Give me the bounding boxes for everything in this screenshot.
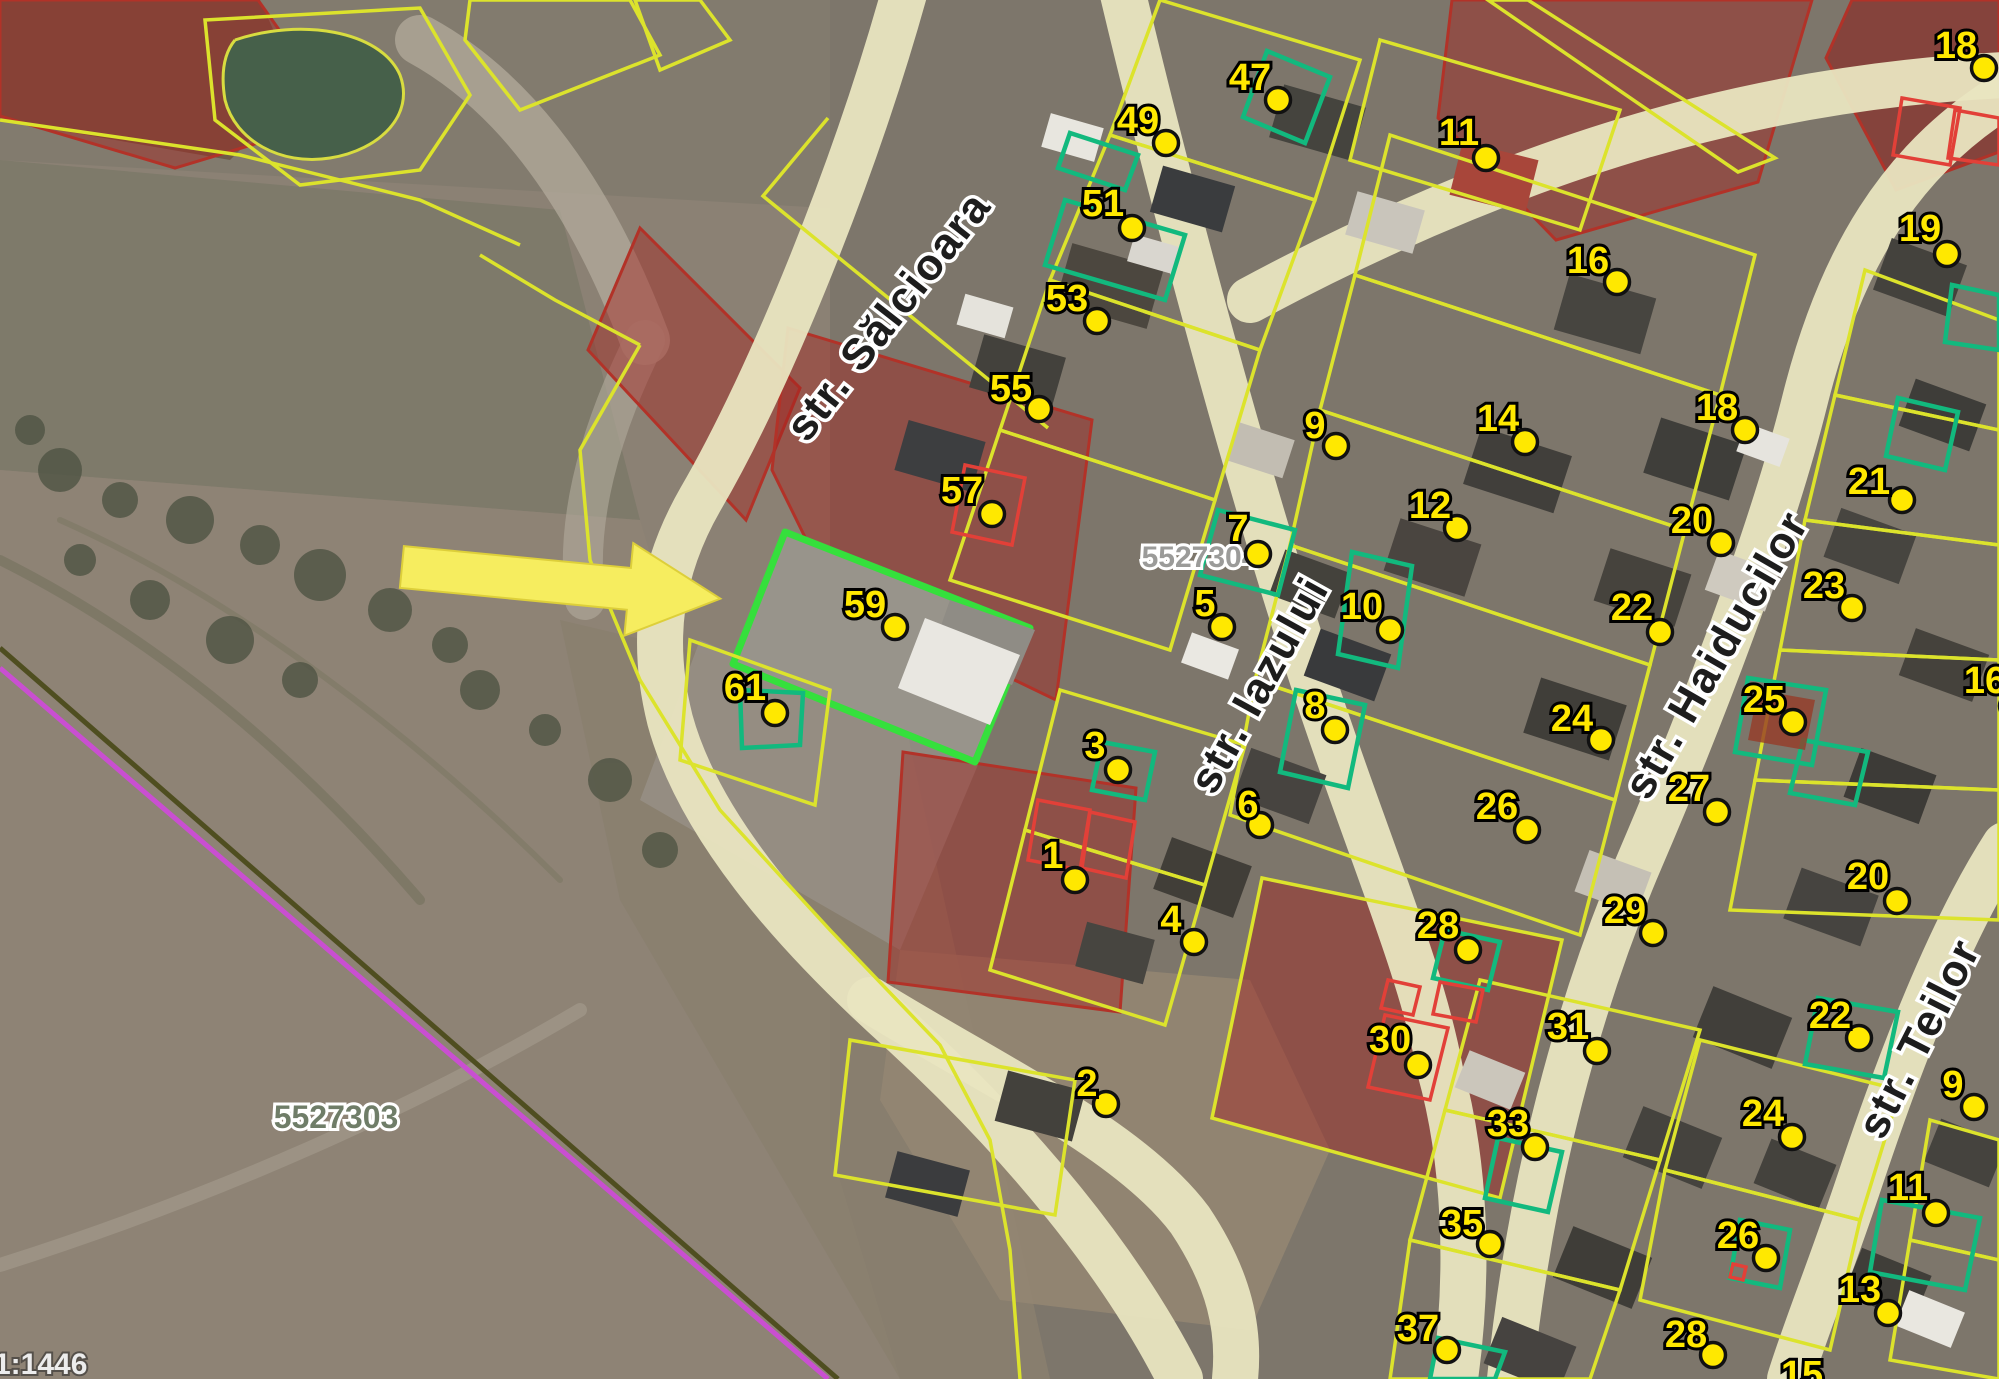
marker-number[interactable]: 18 <box>1696 387 1738 429</box>
marker-number[interactable]: 23 <box>1803 565 1845 607</box>
marker-number[interactable]: 57 <box>941 470 983 512</box>
marker-number[interactable]: 27 <box>1668 768 1710 810</box>
map-viewport[interactable]: str. Sălcioarastr. Iazuluistr. Haiducilo… <box>0 0 1999 1379</box>
marker-number[interactable]: 8 <box>1304 685 1325 727</box>
marker-number[interactable]: 2 <box>1076 1063 1097 1105</box>
marker-number[interactable]: 26 <box>1476 786 1518 828</box>
marker-number[interactable]: 61 <box>724 667 766 709</box>
marker-dot-icon[interactable] <box>1246 542 1271 567</box>
marker-number[interactable]: 53 <box>1046 278 1088 320</box>
marker-number[interactable]: 22 <box>1809 995 1851 1037</box>
marker-dot-icon[interactable] <box>1323 718 1348 743</box>
marker-number[interactable]: 7 <box>1227 508 1248 550</box>
marker-number[interactable]: 9 <box>1304 405 1325 447</box>
marker-number[interactable]: 37 <box>1397 1308 1439 1350</box>
marker-number[interactable]: 20 <box>1671 500 1713 542</box>
pond <box>223 29 403 159</box>
marker-dot-icon[interactable] <box>1515 818 1540 843</box>
marker-number[interactable]: 24 <box>1551 698 1593 740</box>
marker-number[interactable]: 13 <box>1839 1269 1881 1311</box>
marker-dot-icon[interactable] <box>763 701 788 726</box>
marker-number[interactable]: 12 <box>1409 485 1451 527</box>
marker-dot-icon[interactable] <box>883 615 908 640</box>
marker-number[interactable]: 30 <box>1369 1019 1411 1061</box>
marker-number[interactable]: 6 <box>1237 784 1258 826</box>
marker-number[interactable]: 11 <box>1888 1167 1928 1209</box>
marker-number[interactable]: 51 <box>1082 183 1124 225</box>
marker-number[interactable]: 16 <box>1964 660 1999 702</box>
marker-dot-icon[interactable] <box>980 502 1005 527</box>
marker-number[interactable]: 35 <box>1441 1203 1483 1245</box>
marker-dot-icon[interactable] <box>1962 1095 1987 1120</box>
marker-dot-icon[interactable] <box>1456 938 1481 963</box>
marker-number[interactable]: 10 <box>1341 586 1383 628</box>
marker-dot-icon[interactable] <box>1063 868 1088 893</box>
marker-number[interactable]: 19 <box>1899 208 1941 250</box>
marker-number[interactable]: 28 <box>1417 905 1459 947</box>
marker-number[interactable]: 4 <box>1160 899 1181 941</box>
marker-number[interactable]: 15 <box>1781 1354 1823 1379</box>
marker-number[interactable]: 5 <box>1194 583 1215 625</box>
marker-number[interactable]: 9 <box>1942 1064 1963 1106</box>
marker-number[interactable]: 26 <box>1717 1215 1759 1257</box>
marker-number[interactable]: 25 <box>1743 679 1785 721</box>
marker-number[interactable]: 3 <box>1084 725 1105 767</box>
marker-dot-icon[interactable] <box>1890 488 1915 513</box>
marker-number[interactable]: 18 <box>1935 25 1977 67</box>
marker-number[interactable]: 29 <box>1604 890 1646 932</box>
marker-number[interactable]: 47 <box>1229 57 1271 99</box>
marker-dot-icon[interactable] <box>1324 434 1349 459</box>
marker-number[interactable]: 1 <box>1042 835 1063 877</box>
marker-number[interactable]: 11 <box>1439 112 1479 154</box>
marker-number[interactable]: 28 <box>1665 1314 1707 1356</box>
zone-5527303: 5527303 <box>274 1099 399 1135</box>
marker-number[interactable]: 14 <box>1477 398 1519 440</box>
marker-dot-icon[interactable] <box>1106 758 1131 783</box>
marker-number[interactable]: 22 <box>1611 587 1653 629</box>
marker-number[interactable]: 49 <box>1117 100 1159 142</box>
marker-number[interactable]: 20 <box>1847 856 1889 898</box>
marker-number[interactable]: 21 <box>1848 461 1890 503</box>
marker-number[interactable]: 24 <box>1742 1093 1784 1135</box>
scale-indicator: 1:1446 <box>0 1348 87 1379</box>
marker-dot-icon[interactable] <box>1085 309 1110 334</box>
marker-number[interactable]: 16 <box>1567 240 1609 282</box>
marker-number[interactable]: 59 <box>844 584 886 626</box>
marker-number[interactable]: 31 <box>1547 1006 1589 1048</box>
marker-dot-icon[interactable] <box>1182 930 1207 955</box>
map-canvas[interactable]: str. Sălcioarastr. Iazuluistr. Haiducilo… <box>0 0 1999 1379</box>
marker-number[interactable]: 33 <box>1487 1103 1529 1145</box>
marker-number[interactable]: 55 <box>990 368 1032 410</box>
